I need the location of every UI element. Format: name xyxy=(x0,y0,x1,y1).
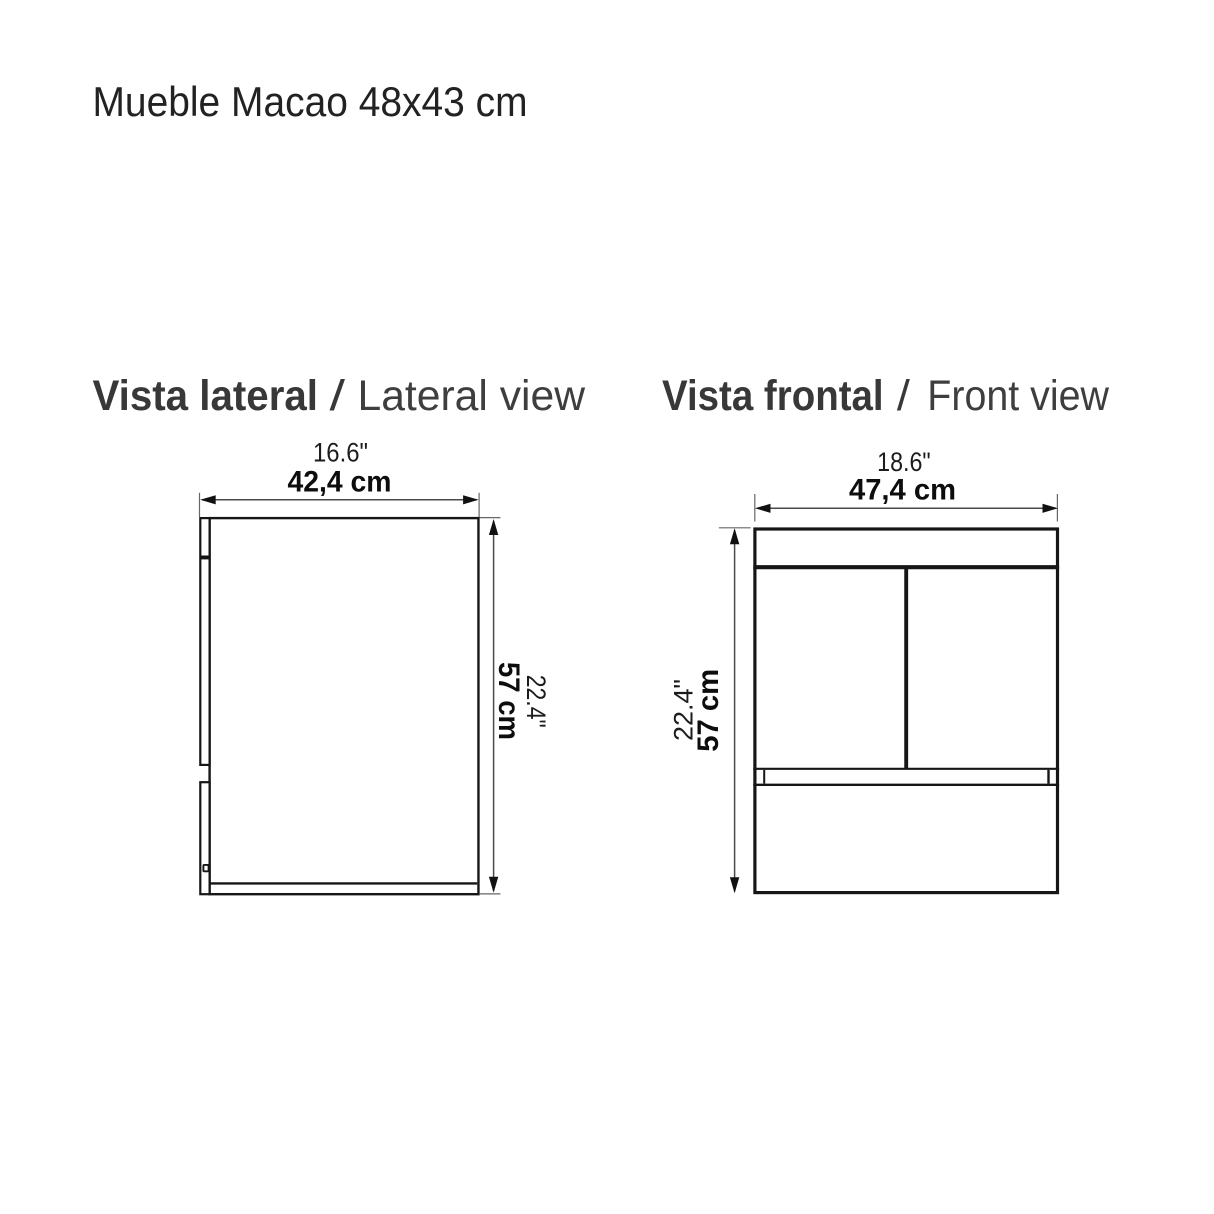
svg-text:22.4": 22.4" xyxy=(521,675,551,728)
svg-text:57 cm: 57 cm xyxy=(492,662,525,740)
svg-text:Mueble Macao 48x43 cm: Mueble Macao 48x43 cm xyxy=(93,78,528,125)
svg-text:Lateral view: Lateral view xyxy=(358,372,586,420)
svg-text:/: / xyxy=(330,372,346,420)
svg-text:/: / xyxy=(897,372,910,420)
svg-text:16.6": 16.6" xyxy=(313,438,368,468)
svg-text:Vista frontal: Vista frontal xyxy=(662,372,884,420)
svg-text:Front view: Front view xyxy=(927,372,1110,420)
svg-text:Vista lateral: Vista lateral xyxy=(93,372,319,420)
svg-text:18.6": 18.6" xyxy=(877,447,931,477)
svg-text:57 cm: 57 cm xyxy=(692,669,725,752)
svg-text:42,4 cm: 42,4 cm xyxy=(288,466,392,499)
svg-text:47,4 cm: 47,4 cm xyxy=(849,473,956,506)
